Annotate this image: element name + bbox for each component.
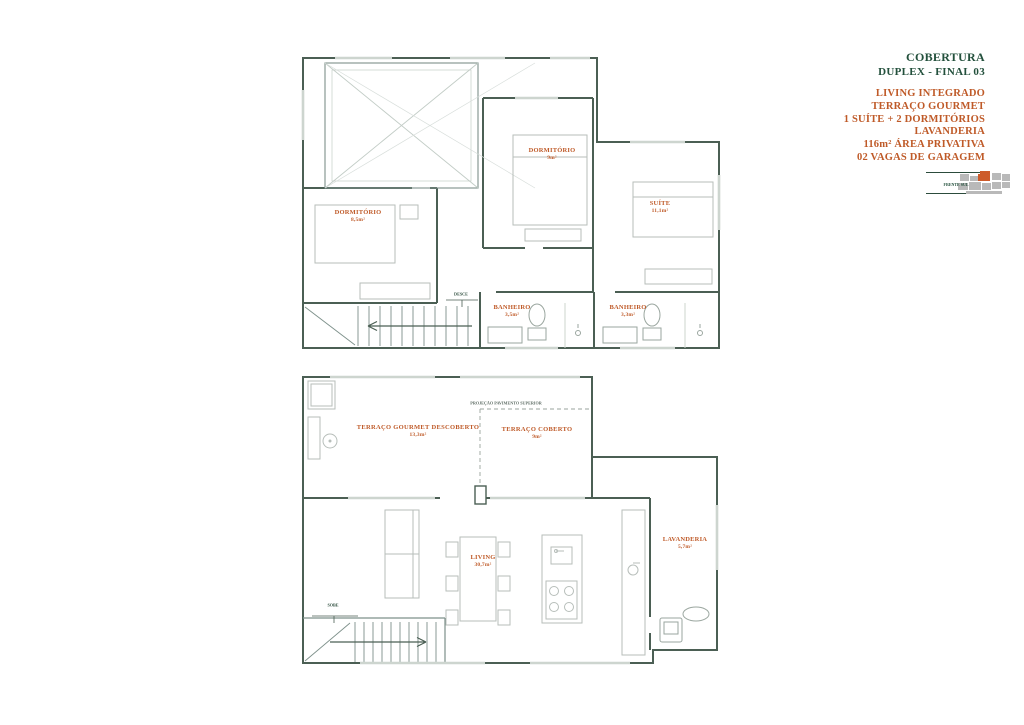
floorplan-sheet: DORMITÓRIO 8,5m² DORMITÓRIO 9m² SUÍTE 11… xyxy=(0,0,1024,725)
upper-slab-projection xyxy=(480,409,592,486)
stair-up xyxy=(303,616,445,663)
info-panel: COBERTURA DUPLEX - FINAL 03 LIVING INTEG… xyxy=(725,50,985,165)
column xyxy=(475,486,486,504)
laundry-fixtures xyxy=(660,607,709,642)
unit-title: COBERTURA xyxy=(725,50,985,65)
terrace-features xyxy=(308,381,337,459)
keyplan-caption-text: FRENTE SUL xyxy=(943,183,968,187)
unit-subtitle: DUPLEX - FINAL 03 xyxy=(725,65,985,80)
bathroom-fixtures xyxy=(488,303,703,348)
feature-line: 02 VAGAS DE GARAGEM xyxy=(725,152,985,165)
lower-windows xyxy=(330,377,717,663)
upper-walls xyxy=(303,58,719,348)
feature-line: TERRAÇO GOURMET xyxy=(725,101,985,114)
keyplan: FRENTE SUL xyxy=(926,170,986,194)
void-area xyxy=(325,63,535,188)
feature-line: 116m² ÁREA PRIVATIVA xyxy=(725,139,985,152)
feature-line: LAVANDERIA xyxy=(725,126,985,139)
highlighted-unit xyxy=(978,171,990,181)
upper-furniture xyxy=(315,135,713,299)
upper-windows xyxy=(303,58,719,348)
stair-down xyxy=(305,300,478,346)
lower-furniture xyxy=(385,510,645,655)
feature-line: LIVING INTEGRADO xyxy=(725,88,985,101)
stair-down-arrow xyxy=(368,300,478,331)
feature-line: 1 SUÍTE + 2 DORMITÓRIOS xyxy=(725,114,985,127)
lower-floor-plan xyxy=(300,365,730,675)
upper-floor-plan xyxy=(300,45,730,365)
